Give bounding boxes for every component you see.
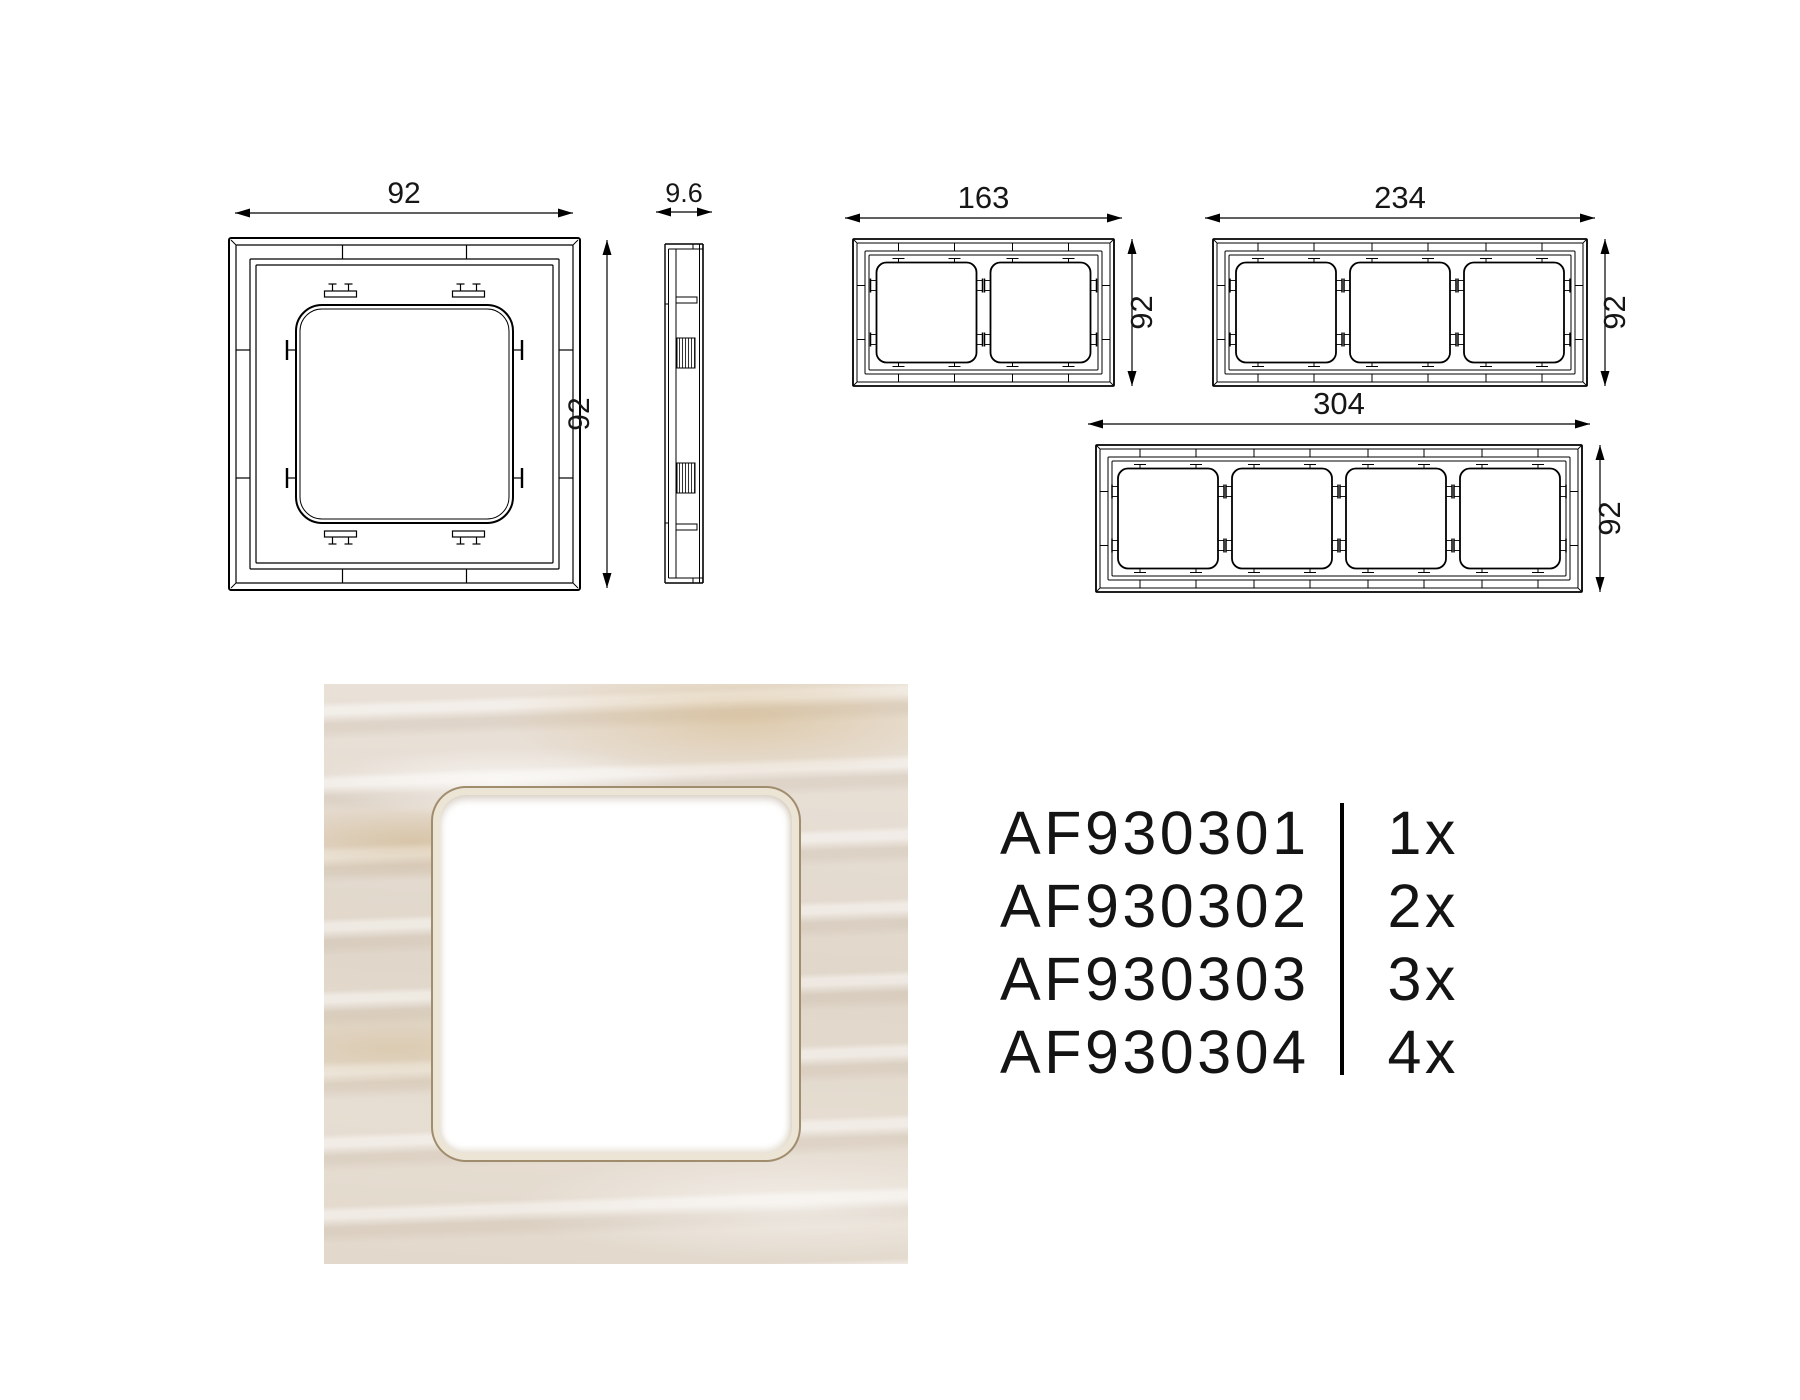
quantity-cell: 2x: [1388, 870, 1459, 943]
photo-frame-opening: [440, 795, 792, 1153]
quantity-column: 1x2x3x4x: [1388, 797, 1459, 1088]
quantity-cell: 4x: [1388, 1015, 1459, 1088]
code-cell: AF930303: [1000, 943, 1312, 1016]
dim-three-gang-width: 234: [1374, 180, 1426, 215]
side-view-drawing: 9.6: [656, 178, 712, 583]
one-gang-front-view-drawing: 9292: [229, 177, 612, 590]
order-codes-table: AF930301AF930302AF930303AF930304 1x2x3x4…: [1000, 797, 1459, 1088]
dim-four-gang-width: 304: [1313, 386, 1365, 421]
dim-side-view-thickness: 9.6: [665, 178, 703, 208]
code-cell: AF930302: [1000, 870, 1312, 943]
dim-three-gang-height: 92: [1597, 295, 1632, 329]
code-column: AF930301AF930302AF930303AF930304: [1000, 797, 1312, 1088]
dim-one-gang-width: 92: [387, 177, 420, 210]
dim-four-gang-height: 92: [1592, 501, 1627, 535]
dim-two-gang-width: 163: [958, 180, 1010, 215]
code-cell: AF930304: [1000, 1015, 1312, 1088]
dim-two-gang-height: 92: [1124, 295, 1159, 329]
two-gang-front-view-drawing: 16392: [845, 180, 1159, 386]
datasheet-page: 92929.6163922349230492 AF930301AF930302A…: [0, 0, 1800, 1400]
four-gang-front-view-drawing: 30492: [1088, 386, 1627, 592]
quantity-cell: 3x: [1388, 943, 1459, 1016]
codes-divider: [1340, 803, 1344, 1075]
three-gang-front-view-drawing: 23492: [1205, 180, 1632, 386]
code-cell: AF930301: [1000, 797, 1312, 870]
quantity-cell: 1x: [1388, 797, 1459, 870]
product-photo: [324, 684, 908, 1264]
dim-one-gang-height: 92: [563, 397, 596, 430]
technical-drawings: 92929.6163922349230492: [0, 0, 1800, 660]
